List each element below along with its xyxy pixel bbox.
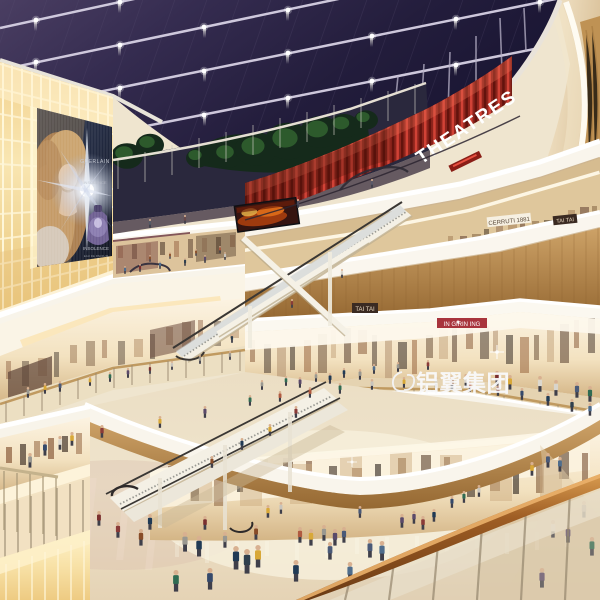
svg-text:INSOLENCE: INSOLENCE <box>83 246 109 251</box>
svg-text:TAI TAI: TAI TAI <box>355 307 375 313</box>
svg-text:IN GIRIN ING: IN GIRIN ING <box>444 322 481 328</box>
svg-text:铝翼集团: 铝翼集团 <box>416 370 510 396</box>
